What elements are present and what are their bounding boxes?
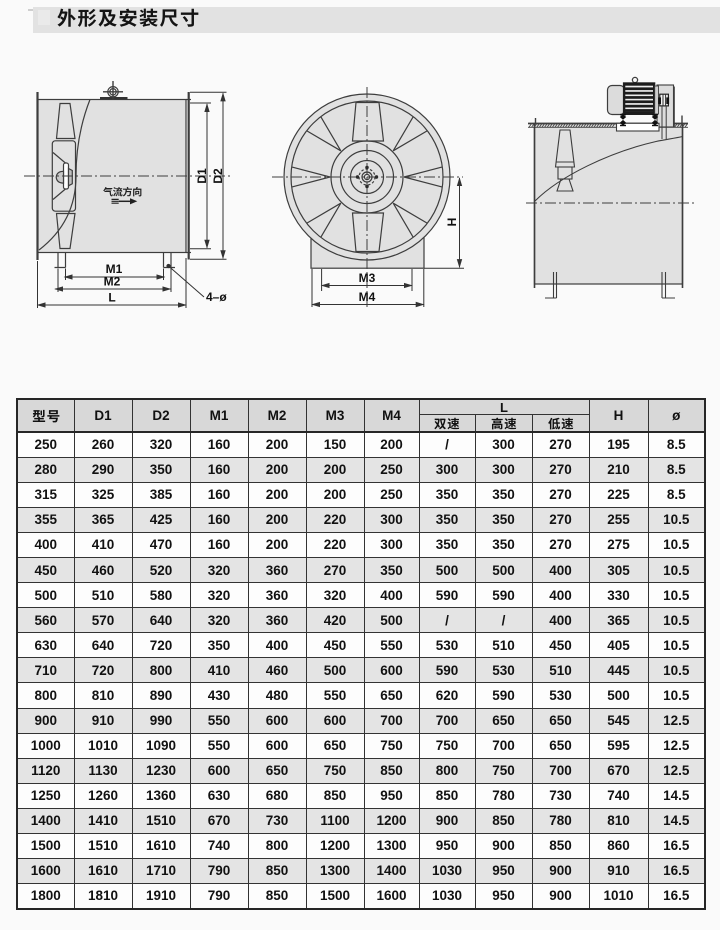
svg-text:D1: D1 (195, 168, 209, 184)
svg-text:D2: D2 (211, 168, 225, 184)
svg-text:L: L (108, 291, 115, 305)
svg-text:M4: M4 (359, 290, 376, 304)
svg-text:4–ø: 4–ø (206, 290, 227, 304)
svg-text:M2: M2 (104, 275, 121, 289)
svg-text:M3: M3 (359, 271, 376, 285)
svg-text:H: H (445, 218, 459, 227)
